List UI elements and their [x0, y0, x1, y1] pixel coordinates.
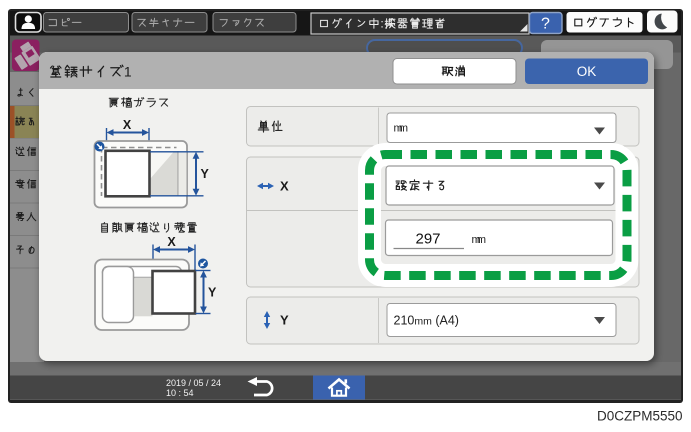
svg-text:D0CZPM5550: D0CZPM5550 [597, 409, 683, 424]
svg-text:10 : 54: 10 : 54 [166, 388, 194, 398]
svg-text:X: X [123, 118, 132, 132]
svg-text:210mm (A4): 210mm (A4) [394, 314, 459, 328]
svg-text:X: X [280, 179, 289, 194]
svg-text:OK: OK [577, 64, 597, 79]
svg-text:1: 1 [124, 63, 132, 79]
svg-text:Y: Y [280, 313, 289, 328]
svg-text:X: X [167, 235, 176, 249]
svg-text:mm: mm [394, 123, 409, 135]
svg-text:2019 / 05 / 24: 2019 / 05 / 24 [166, 378, 221, 388]
svg-text::: : [380, 17, 383, 31]
svg-text:mm: mm [472, 234, 487, 246]
svg-text:Y: Y [208, 286, 217, 300]
svg-text:?: ? [541, 16, 550, 33]
svg-text:Y: Y [201, 167, 210, 181]
svg-text:297: 297 [415, 231, 440, 248]
